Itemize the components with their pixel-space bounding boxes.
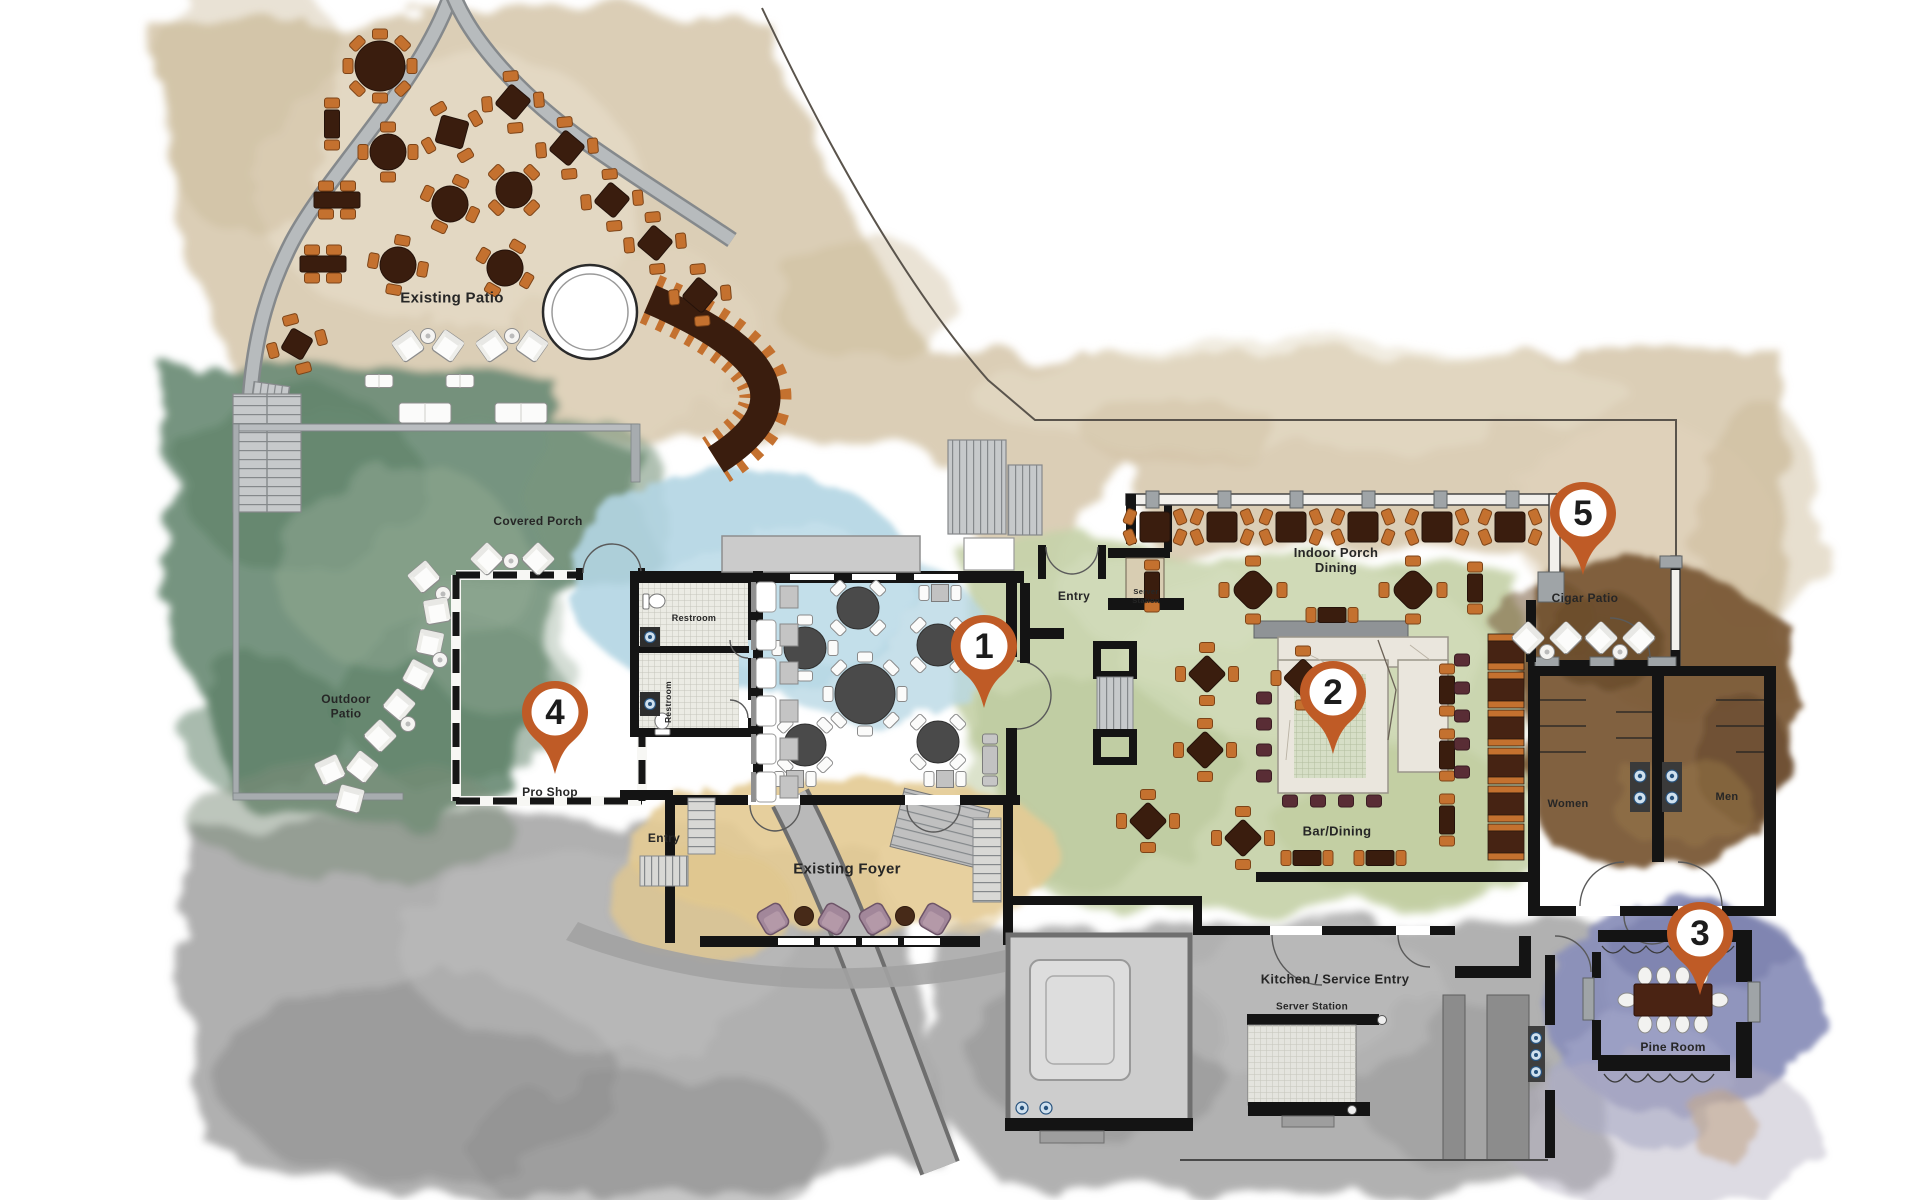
furniture-s2h: [919, 585, 961, 602]
floor-plan-drawing: Existing PatioCovered PorchOutdoorPatioP…: [0, 0, 1920, 1200]
furniture-lounge: [423, 597, 451, 625]
label-covered-porch: Covered Porch: [493, 514, 582, 528]
furniture-sidetable: [505, 329, 520, 344]
banquette-bench: [722, 536, 920, 572]
marker-number: 2: [1323, 673, 1342, 712]
label-server-station-top: ServerStation: [1132, 587, 1160, 605]
furniture-rect2h: [1306, 608, 1358, 623]
furniture-booth: [751, 772, 798, 802]
label-women: Women: [1547, 798, 1588, 810]
furniture-pouf: [896, 907, 915, 926]
map-marker-1[interactable]: 1: [946, 612, 1022, 712]
furniture-sidetable: [1613, 645, 1628, 660]
label-restroom-lower: Restroom: [663, 681, 673, 723]
furniture-booth: [751, 658, 798, 688]
furniture-stool: [1257, 692, 1272, 704]
furniture-rect2h: [1281, 851, 1333, 866]
furniture-stool: [1339, 795, 1354, 807]
furniture-r8: [823, 652, 907, 736]
furniture-s2h: [924, 771, 966, 788]
label-pro-shop: Pro Shop: [522, 785, 578, 799]
furniture-sidetable: [504, 554, 519, 569]
furniture-stool: [1455, 654, 1470, 666]
marker-number: 3: [1690, 914, 1709, 953]
furniture-sofa: [365, 375, 393, 388]
furniture-stool: [1455, 738, 1470, 750]
furniture-sidetable: [1540, 645, 1555, 660]
label-pine-room: Pine Room: [1640, 1040, 1705, 1054]
porch-fence: [236, 424, 638, 431]
floor-plan-canvas: Existing PatioCovered PorchOutdoorPatioP…: [0, 0, 1920, 1200]
furniture-pouf: [795, 907, 814, 926]
furniture-rect2v: [325, 98, 340, 150]
furniture-stool: [1367, 795, 1382, 807]
furniture-sofa: [446, 375, 474, 388]
furniture-sidetable: [421, 329, 436, 344]
label-cigar-patio: Cigar Patio: [1552, 591, 1619, 605]
furniture-stool: [1455, 710, 1470, 722]
fire-pit-circle: [543, 265, 637, 359]
furniture-sidetable: [401, 717, 416, 732]
furniture-rect2h: [1354, 851, 1406, 866]
label-men: Men: [1716, 791, 1739, 803]
marker-number: 1: [974, 627, 993, 666]
label-entry-west: Entry: [648, 831, 680, 845]
label-restroom-upper: Restroom: [672, 613, 716, 623]
furniture-sofa: [495, 403, 547, 423]
small-restrooms: [630, 583, 758, 737]
map-marker-3[interactable]: 3: [1662, 899, 1738, 999]
furniture-stool: [1257, 744, 1272, 756]
furniture-booth: [751, 696, 798, 726]
furniture-stool: [1257, 718, 1272, 730]
label-bar-dining: Bar/Dining: [1303, 824, 1372, 839]
label-existing-patio: Existing Patio: [400, 289, 503, 306]
furniture-rect2v: [1440, 664, 1455, 716]
furniture-rect2v: [1468, 562, 1483, 614]
label-existing-foyer: Existing Foyer: [793, 860, 901, 877]
label-kitchen-service-entry: Kitchen / Service Entry: [1261, 972, 1410, 987]
furniture-sofa: [399, 403, 451, 423]
map-marker-4[interactable]: 4: [517, 678, 593, 778]
furniture-booth: [751, 734, 798, 764]
furniture-stool: [1283, 795, 1298, 807]
furniture-rect2v: [983, 734, 998, 786]
furniture-rect2v: [1440, 794, 1455, 846]
furniture-booth: [751, 582, 798, 612]
furniture-sidetable: [433, 653, 448, 668]
furniture-rect2v: [1440, 729, 1455, 781]
furniture-stool: [1311, 795, 1326, 807]
furniture-booth: [751, 620, 798, 650]
furniture-stool: [1455, 682, 1470, 694]
label-server-station-bottom: Server Station: [1276, 1002, 1348, 1013]
marker-number: 4: [545, 693, 565, 732]
map-marker-2[interactable]: 2: [1295, 658, 1371, 758]
furniture-lounge: [335, 784, 364, 813]
furniture-stool: [1257, 770, 1272, 782]
furniture-stool: [1455, 766, 1470, 778]
label-entry-main: Entry: [1058, 589, 1090, 603]
map-marker-5[interactable]: 5: [1545, 479, 1621, 579]
marker-number: 5: [1573, 494, 1592, 533]
